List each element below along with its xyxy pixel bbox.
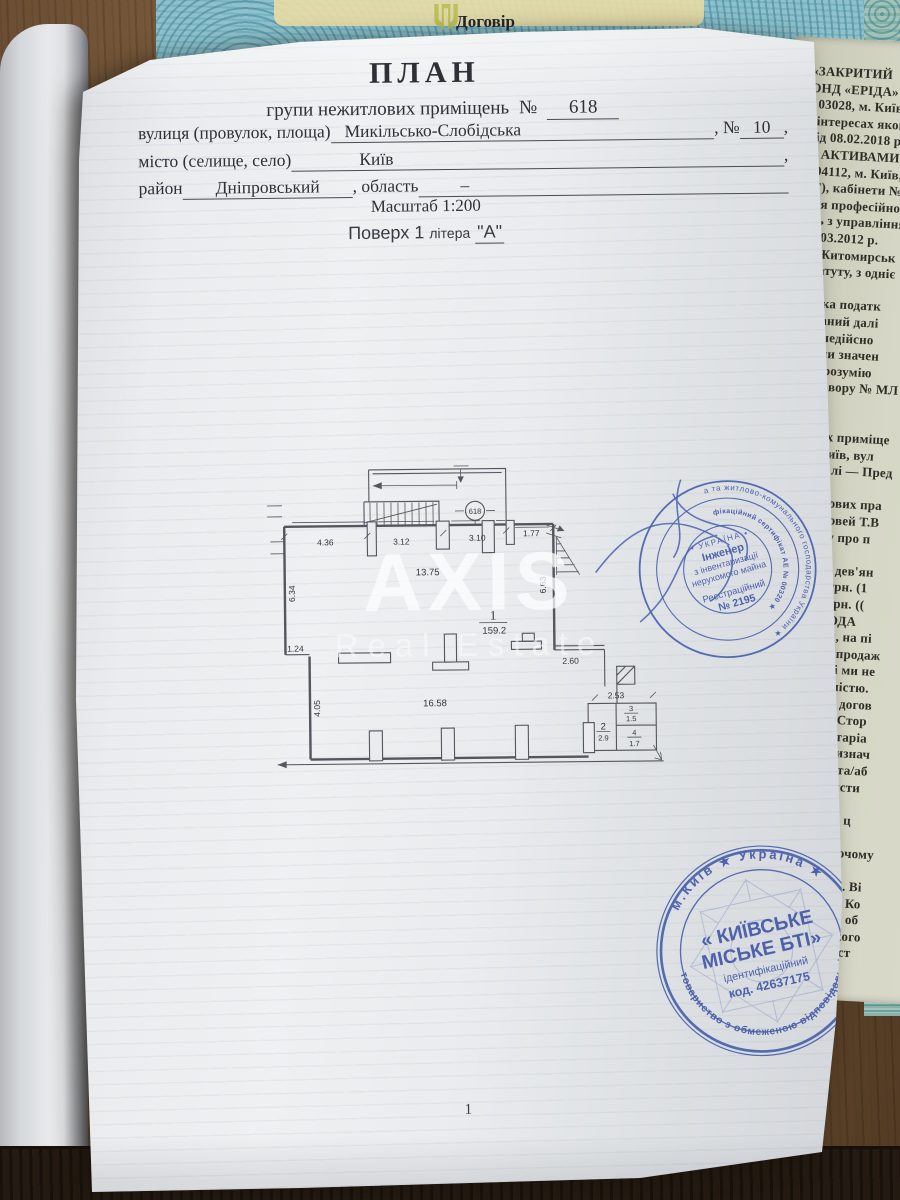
column bbox=[369, 731, 382, 761]
rooms-cluster-walls bbox=[588, 703, 656, 751]
dim-right-bottom: 2.60 bbox=[562, 656, 579, 666]
photo-scene: Договір «ЗАКРИТИЙОНД «ЕРІДА»; 03028, м. … bbox=[0, 0, 900, 1200]
city-label: місто (селище, село) bbox=[138, 150, 291, 173]
district-label: район bbox=[139, 178, 183, 199]
room1-area: 159.2 bbox=[482, 625, 506, 636]
stair-direction-line bbox=[373, 481, 457, 490]
oblast-value: – bbox=[418, 171, 788, 197]
pier bbox=[583, 723, 594, 753]
plan-page-content: ПЛАН групи нежитлових приміщень № 618 ву… bbox=[52, 10, 858, 1200]
pier bbox=[436, 521, 449, 549]
vestibule-walls bbox=[369, 468, 507, 525]
street-no-label: , № bbox=[714, 117, 740, 138]
city-row-comma: , bbox=[784, 144, 789, 165]
bti-stamp: м.Київ ★ Україна ★ товариство з обмежено… bbox=[645, 835, 877, 1067]
dim-top-4: 1.77 bbox=[523, 528, 540, 538]
dim-left-step: 1.24 bbox=[287, 644, 304, 654]
dim-top-3: 3.10 bbox=[469, 533, 486, 543]
pier bbox=[367, 522, 376, 556]
left-lower-wall bbox=[310, 657, 311, 760]
baseline bbox=[278, 761, 664, 765]
room1-number: 1 bbox=[490, 608, 497, 623]
exterior-steps bbox=[556, 537, 579, 575]
entry-arrow-icon bbox=[457, 476, 463, 483]
baseline-right-arrow bbox=[653, 745, 661, 760]
inspector-stamp: ★ Міністерство регіонального розвитку, б… bbox=[576, 448, 879, 701]
litera-label: літера bbox=[429, 225, 470, 241]
dim-top-1: 4.36 bbox=[317, 537, 334, 547]
room3-number: 3 bbox=[629, 704, 633, 713]
number-sign: № bbox=[519, 97, 537, 119]
city-row: місто (селище, село) Київ , bbox=[138, 144, 788, 173]
room2-area: 2.9 bbox=[598, 733, 609, 742]
dim-left-lower: 4.05 bbox=[312, 700, 322, 717]
city-value: Київ bbox=[291, 145, 784, 172]
stair-arrow-icon bbox=[373, 482, 382, 489]
pier-t-base bbox=[433, 662, 469, 670]
floor-label: Поверх 1 bbox=[348, 222, 424, 243]
dim-left-height: 6.34 bbox=[287, 585, 297, 602]
pier bbox=[506, 520, 514, 544]
right-wall bbox=[553, 524, 554, 650]
street-row-comma: , bbox=[784, 116, 789, 137]
room4-number: 4 bbox=[632, 728, 636, 737]
litera-value: "А" bbox=[475, 221, 504, 243]
plan-page-wrap: ПЛАН групи нежитлових приміщень № 618 ву… bbox=[58, 14, 852, 1196]
unit-number: 618 bbox=[469, 507, 482, 516]
dim-bottom-width: 16.58 bbox=[423, 698, 447, 709]
room2-number: 2 bbox=[601, 721, 606, 732]
dim-top-width: 13.75 bbox=[416, 567, 440, 578]
column bbox=[515, 725, 528, 759]
district-value: Дніпровський bbox=[183, 176, 353, 200]
door-swing-ticks bbox=[267, 506, 285, 554]
baseline-arrow-icon bbox=[278, 761, 287, 768]
oblast-label: , область bbox=[353, 175, 419, 197]
room3-area: 1.5 bbox=[626, 714, 637, 723]
column bbox=[441, 728, 454, 760]
page-title: ПЛАН bbox=[274, 55, 574, 92]
dim-right-height: 6.63 bbox=[538, 576, 548, 593]
premises-number-value: 618 bbox=[547, 96, 619, 120]
street-no-value: 10 bbox=[740, 117, 784, 139]
pier-t-stem bbox=[444, 634, 456, 662]
subtitle-text: групи нежитлових приміщень bbox=[266, 97, 509, 122]
scale-line: Масштаб 1:200 bbox=[276, 195, 576, 218]
page-number: 1 bbox=[456, 1102, 480, 1119]
pier-l bbox=[511, 641, 541, 649]
plan-document-page: ПЛАН групи нежитлових приміщень № 618 ву… bbox=[58, 14, 852, 1196]
room4-area: 1.7 bbox=[629, 739, 640, 748]
dim-top-2: 3.12 bbox=[393, 536, 410, 546]
left-wall bbox=[284, 527, 285, 655]
pier-l2 bbox=[522, 633, 534, 641]
street-value: Микільсько-Слобідська bbox=[330, 117, 714, 143]
pier-slab bbox=[338, 653, 390, 664]
street-label: вулиця (провулок, площа) bbox=[138, 121, 331, 144]
floor-line: Поверх 1 літера "А" bbox=[276, 221, 576, 246]
